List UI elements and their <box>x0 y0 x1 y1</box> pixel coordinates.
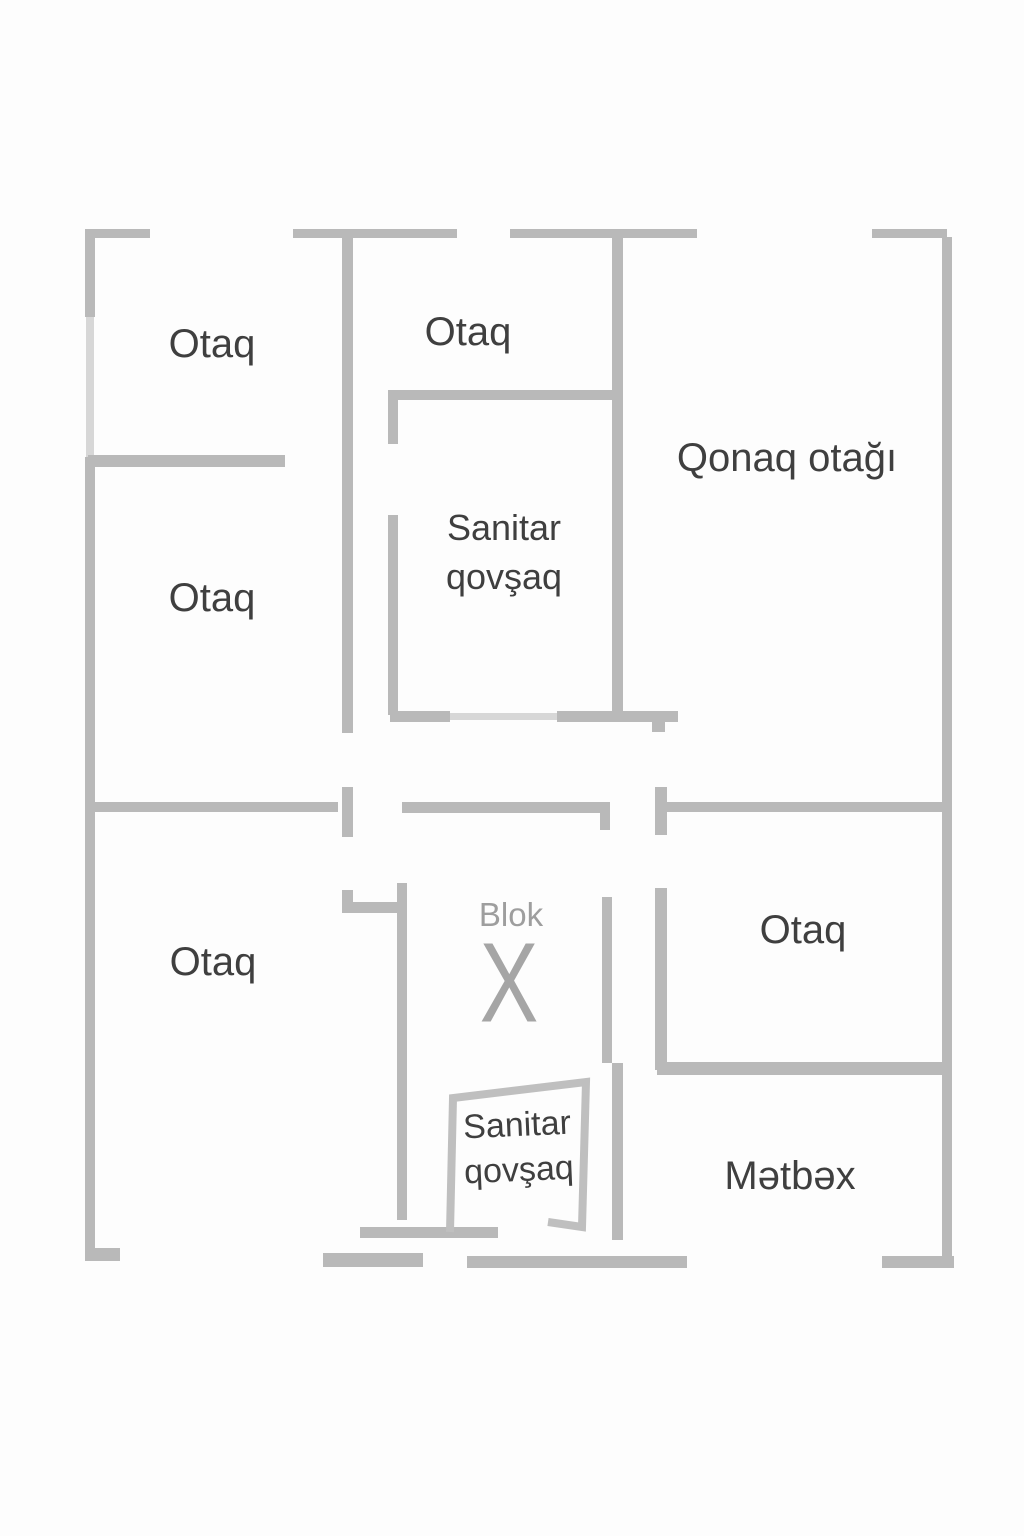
wall-bottom-3 <box>467 1256 687 1268</box>
wall-hall-3 <box>667 802 945 812</box>
wall-left-lower <box>85 457 95 1250</box>
wall-hall-tab <box>600 802 610 830</box>
wall-left-upper <box>85 237 95 317</box>
wall-sanitar-left-1 <box>388 398 398 444</box>
wall-hall-stub-2 <box>655 787 667 835</box>
sanitar-upper-line2: qovşaq <box>446 552 562 601</box>
wall-sanitar-left-2 <box>388 515 398 715</box>
wall-top-3 <box>510 229 697 238</box>
door-sanitar-bottom <box>450 713 557 720</box>
wall-bottom-4 <box>882 1256 954 1268</box>
wall-left-rooms-divider <box>88 455 285 467</box>
wall-right <box>942 237 952 1257</box>
wall-blok-right <box>602 897 612 1063</box>
wall-central-vertical <box>342 237 353 733</box>
room-label-otaq-top-middle: Otaq <box>425 309 512 355</box>
sanitar-upper-line1: Sanitar <box>446 503 562 552</box>
wall-top-2 <box>293 229 457 238</box>
room-label-metbex: Mətbəx <box>724 1153 855 1199</box>
room-label-otaq-bottom-right: Otaq <box>760 907 847 953</box>
room-label-otaq-bottom-left: Otaq <box>170 939 257 985</box>
wall-otaq-br-left <box>655 888 667 1070</box>
wall-bottom-2 <box>323 1253 423 1267</box>
wall-blok-left <box>397 883 407 1220</box>
wall-kitchen-left <box>612 1063 623 1240</box>
wall-sanitar-tick <box>652 722 665 732</box>
floorplan-page: Otaq Otaq Qonaq otağı Otaq Sanitar qovşa… <box>0 0 1024 1536</box>
window-left <box>86 317 94 457</box>
blok-x-symbol: X <box>480 927 539 1040</box>
wall-hall-stub-1 <box>342 787 353 837</box>
room-label-qonaq-otagi: Qonaq otağı <box>677 435 897 481</box>
wall-qonaq-left <box>612 237 623 715</box>
floorplan-drawing <box>0 0 1024 1536</box>
wall-sanitar-bottom-1 <box>390 711 450 722</box>
room-label-sanitar-upper: Sanitar qovşaq <box>446 503 562 601</box>
room-label-otaq-top-left: Otaq <box>169 321 256 367</box>
sanitar-lower-line1: Sanitar <box>461 1101 572 1151</box>
sanitar-lower-line2: qovşaq <box>463 1146 574 1196</box>
wall-hall-1 <box>90 802 338 812</box>
wall-blok-bottom <box>360 1227 498 1238</box>
wall-sanitar-top <box>388 390 620 400</box>
wall-top-4 <box>872 229 947 238</box>
wall-top-1 <box>85 229 150 238</box>
wall-blok-corner-h <box>342 902 402 913</box>
wall-bottom-1 <box>85 1248 120 1261</box>
room-label-otaq-middle-left: Otaq <box>169 575 256 621</box>
wall-kitchen-top <box>657 1062 945 1075</box>
wall-hall-2 <box>402 802 610 813</box>
room-label-sanitar-lower: Sanitar qovşaq <box>461 1101 574 1196</box>
